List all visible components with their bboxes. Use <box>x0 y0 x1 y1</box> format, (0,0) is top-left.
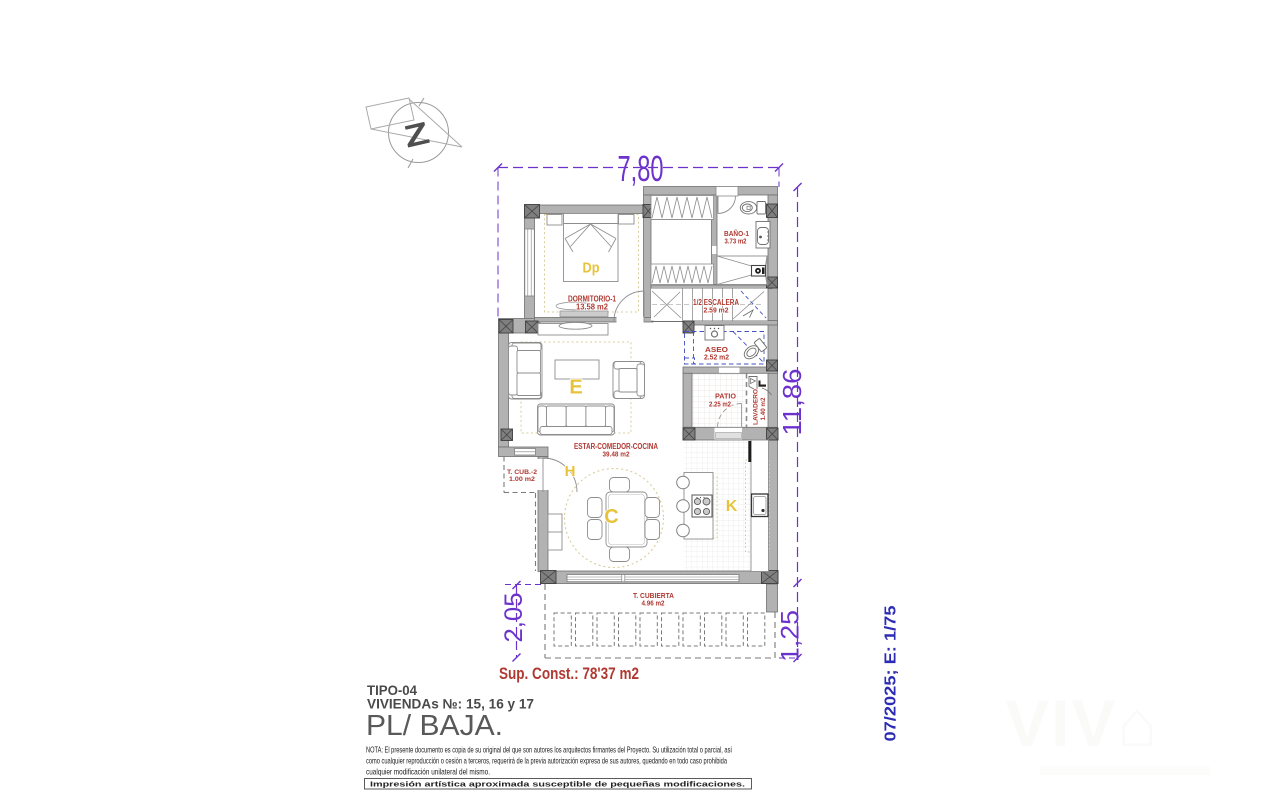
svg-text:K: K <box>726 498 738 515</box>
svg-text:1.00 m2: 1.00 m2 <box>509 476 535 483</box>
svg-text:2,05: 2,05 <box>500 593 528 643</box>
svg-text:PATIO: PATIO <box>715 394 737 401</box>
svg-text:C: C <box>604 506 618 528</box>
svg-text:Dp: Dp <box>583 260 600 277</box>
svg-text:VIV⌂: VIV⌂ <box>1005 686 1159 760</box>
svg-text:LAVADERO: LAVADERO <box>753 389 760 425</box>
svg-text:13.58 m2: 13.58 m2 <box>576 303 609 312</box>
svg-text:cualquier modificación unilate: cualquier modificación unilateral del mi… <box>366 768 490 777</box>
svg-text:4.96 m2: 4.96 m2 <box>642 601 665 608</box>
svg-text:NOTA: El presente documento es: NOTA: El presente documento es copia de … <box>366 746 733 755</box>
svg-text:T. CUB.-2: T. CUB.-2 <box>507 469 537 476</box>
svg-text:como cualquier reproducción o: como cualquier reproducción o cesión a t… <box>366 757 727 766</box>
svg-text:T. CUBIERTA: T. CUBIERTA <box>633 591 675 600</box>
svg-text:PL/ BAJA.: PL/ BAJA. <box>366 710 503 742</box>
svg-text:7,80: 7,80 <box>618 148 664 189</box>
svg-text:H: H <box>565 463 576 480</box>
svg-text:3.73 m2: 3.73 m2 <box>725 239 747 246</box>
svg-text:1,25: 1,25 <box>777 610 805 662</box>
svg-text:BAÑO-1: BAÑO-1 <box>724 229 749 238</box>
svg-text:2.25 m2: 2.25 m2 <box>709 402 731 409</box>
svg-text:07/2025; E: 1/75: 07/2025; E: 1/75 <box>883 605 900 741</box>
svg-text:Impresión artística aproxima: Impresión artística aproximada susceptib… <box>370 780 745 789</box>
svg-text:1.40 m2: 1.40 m2 <box>760 397 767 420</box>
svg-text:11,86: 11,86 <box>777 369 807 436</box>
svg-text:2.59 m2: 2.59 m2 <box>704 306 729 315</box>
svg-text:E: E <box>569 377 582 399</box>
svg-text:2.52 m2: 2.52 m2 <box>704 353 729 362</box>
svg-text:39.48 m2: 39.48 m2 <box>603 450 630 459</box>
svg-text:Sup. Const.: 78'37 m2: Sup. Const.: 78'37 m2 <box>499 665 639 683</box>
